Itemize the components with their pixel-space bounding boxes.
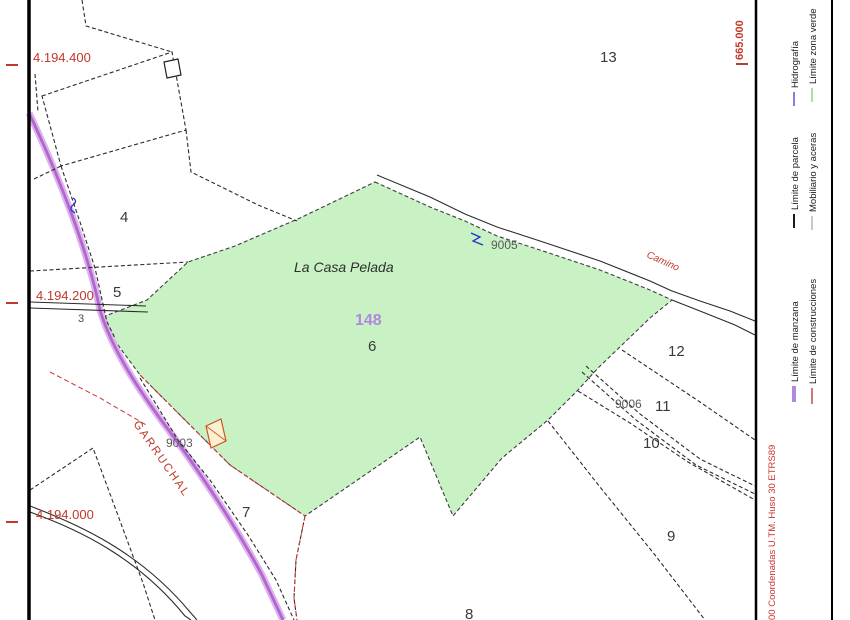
y-coordinate-label-1: 4.194.400 xyxy=(33,50,91,65)
legend-label-manzana: Límite de manzana xyxy=(790,300,801,382)
parcel-label-9: 9 xyxy=(667,528,675,545)
legend-label-zona-verde: Límite zona verde xyxy=(808,8,819,84)
construction-limit-below-tip xyxy=(294,516,305,620)
map-svg: 4.194.400 4.194.200 4.194.000 665.000 4 … xyxy=(0,0,850,620)
building-parcel4 xyxy=(164,59,181,78)
road-name-camino: Camino xyxy=(645,250,681,274)
parcel-label-3: 3 xyxy=(78,313,84,325)
boundary-left-stub xyxy=(35,74,38,112)
parcel-label-4: 4 xyxy=(120,209,128,226)
parcel-label-13: 13 xyxy=(600,49,617,66)
road-name-garruchal: GARRUCHAL xyxy=(131,419,193,500)
y-coordinate-label-3: 4.194.000 xyxy=(36,507,94,522)
parcel-label-5: 5 xyxy=(113,284,121,301)
camino-9006-line-1 xyxy=(586,366,755,486)
camino-9006-line-2 xyxy=(582,372,755,494)
block-number-label: 148 xyxy=(355,312,382,329)
path-double-line-2 xyxy=(30,512,191,620)
way-code-9006: 9006 xyxy=(615,397,642,411)
way-code-9005: 9005 xyxy=(491,238,518,252)
place-name-label: La Casa Pelada xyxy=(294,259,394,275)
way-code-9003: 9003 xyxy=(166,436,193,450)
x-coordinate-label: 665.000 xyxy=(734,20,746,60)
legend-label-hidrografia: Hidrografía xyxy=(790,40,801,88)
green-zone-polygon xyxy=(100,182,672,516)
parcel5-top-line xyxy=(30,262,188,271)
parcel4-outline xyxy=(42,52,186,166)
parcel-label-12: 12 xyxy=(668,343,685,360)
boundary-parcel4-to-green xyxy=(186,130,297,221)
parcel-label-7: 7 xyxy=(242,504,250,521)
legend-label-mobiliario: Mobiliario y aceras xyxy=(808,133,819,212)
boundary-top-left xyxy=(82,0,172,52)
boundary-9-8 xyxy=(548,421,705,620)
cadastral-map-view: 4.194.400 4.194.200 4.194.000 665.000 4 … xyxy=(0,0,850,620)
path-double-line-1 xyxy=(30,506,197,620)
legend-label-parcela: Límite de parcela xyxy=(790,136,801,210)
y-coordinate-label-2: 4.194.200 xyxy=(36,288,94,303)
boundary-12-11 xyxy=(622,350,755,440)
legend-label-construcciones: Límite de construcciones xyxy=(808,279,819,384)
parcel-label-6: 6 xyxy=(368,338,376,355)
legend-coords-note: 00 Coordenadas U.TM. Huso 30 ETRS89 xyxy=(767,445,778,620)
parcel-label-11: 11 xyxy=(655,398,671,415)
parcel-label-10: 10 xyxy=(643,435,660,452)
parcel-label-8: 8 xyxy=(465,606,473,620)
